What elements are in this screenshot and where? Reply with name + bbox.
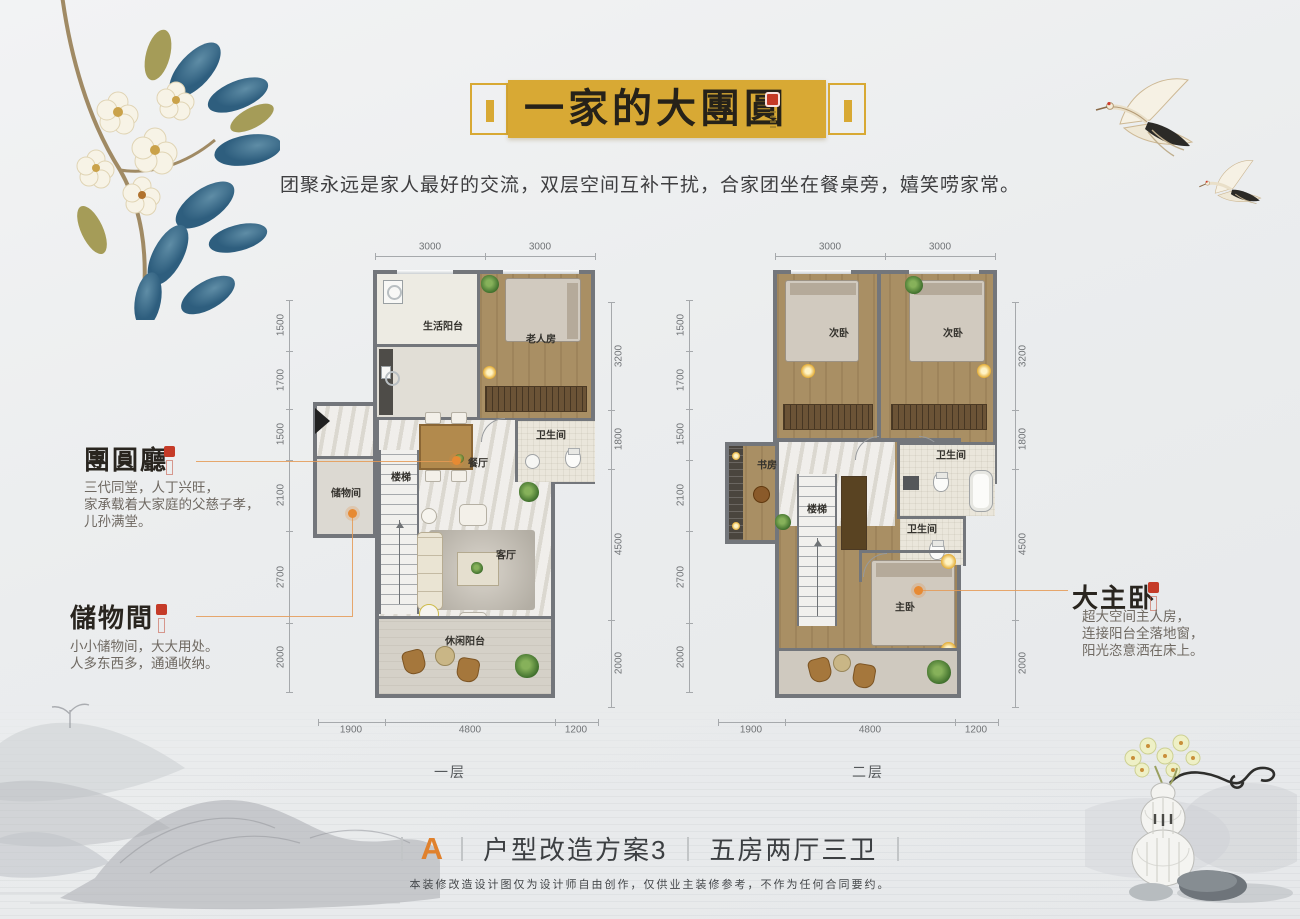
dim-label: 4500 bbox=[614, 533, 625, 555]
red-seal-icon bbox=[765, 92, 780, 107]
room-label: 主卧 bbox=[895, 599, 915, 614]
lamp-icon bbox=[801, 364, 815, 378]
wall bbox=[515, 418, 595, 421]
dim-label: 1800 bbox=[1018, 428, 1029, 450]
crane-icon bbox=[1090, 72, 1210, 164]
annotation-line: 三代同堂，人丁兴旺， bbox=[84, 479, 260, 496]
annotation-body-hall: 三代同堂，人丁兴旺， 家承载着大家庭的父慈子孝， 儿孙满堂。 bbox=[84, 479, 260, 530]
separator-bar bbox=[897, 837, 899, 861]
wall bbox=[963, 516, 966, 566]
room-label: 客厅 bbox=[496, 547, 516, 562]
wall bbox=[897, 442, 900, 516]
dim-label: 2700 bbox=[276, 566, 287, 588]
dim-label: 1800 bbox=[614, 428, 625, 450]
dim-label: 1900 bbox=[340, 725, 362, 736]
window bbox=[909, 270, 979, 274]
sink-icon bbox=[525, 454, 540, 469]
plant-icon bbox=[905, 276, 923, 294]
room-label: 次卧 bbox=[829, 325, 849, 340]
annotation-line: 超大空间主人房， bbox=[1082, 608, 1204, 625]
dim-label: 2700 bbox=[676, 566, 687, 588]
plant-icon bbox=[481, 275, 499, 293]
callout-dot bbox=[452, 456, 461, 465]
floor1-label: 一层 bbox=[434, 762, 466, 782]
annotation-title-hall: 團圓廳 bbox=[84, 440, 168, 477]
lamp-icon bbox=[732, 452, 740, 460]
wall bbox=[897, 442, 995, 445]
dim-label: 3200 bbox=[614, 345, 625, 367]
dimension-line bbox=[318, 722, 598, 723]
annotation-line: 儿孙满堂。 bbox=[84, 513, 260, 530]
leader-line bbox=[922, 590, 1068, 591]
dim-label: 1700 bbox=[676, 369, 687, 391]
dim-label: 4800 bbox=[459, 725, 481, 736]
wall bbox=[859, 550, 961, 553]
sofa-icon bbox=[417, 532, 443, 610]
room-label: 休闲阳台 bbox=[445, 633, 485, 648]
dim-label: 1700 bbox=[276, 369, 287, 391]
wall bbox=[515, 418, 518, 482]
leader-line bbox=[196, 616, 352, 617]
scheme-spec: 五房两厅三卫 bbox=[709, 830, 877, 867]
disclaimer-text: 本装修改造设计图仅为设计师自由创作，仅供业主装修参考，不作为任何合同要约。 bbox=[0, 876, 1300, 892]
desk-chair-icon bbox=[753, 486, 770, 503]
annotation-line: 连接阳台全落地窗， bbox=[1082, 625, 1204, 642]
chair-icon bbox=[451, 470, 467, 482]
floor2-label: 二层 bbox=[852, 762, 884, 782]
bathtub-icon bbox=[969, 470, 993, 512]
floor1-plan: 3000 3000 1500 1700 1500 2100 2700 2000 … bbox=[313, 270, 615, 712]
lamp-icon bbox=[977, 364, 991, 378]
patio-table-icon bbox=[435, 646, 455, 666]
room-label: 老人房 bbox=[526, 331, 556, 346]
room-label: 餐厅 bbox=[468, 455, 488, 470]
poster-page: 一家的大團圓 团聚永远是家人最好的交流，双层空间互补干扰，合家团坐在餐桌旁，嬉笑… bbox=[0, 0, 1300, 919]
dimension-line bbox=[718, 722, 998, 723]
bed-icon bbox=[909, 280, 985, 362]
room-label: 生活阳台 bbox=[423, 318, 463, 333]
dim-label: 1500 bbox=[276, 423, 287, 445]
dim-label: 3200 bbox=[1018, 345, 1029, 367]
plant-icon bbox=[515, 654, 539, 678]
annotation-title-storage: 儲物間 bbox=[70, 598, 154, 635]
room-label: 卫生间 bbox=[536, 427, 566, 442]
toilet-icon bbox=[933, 472, 949, 492]
room-label: 楼梯 bbox=[391, 469, 411, 484]
window bbox=[503, 270, 579, 274]
lamp-icon bbox=[941, 554, 956, 569]
red-seal-icon bbox=[164, 446, 175, 457]
room-label: 楼梯 bbox=[807, 501, 827, 516]
room-label: 次卧 bbox=[943, 325, 963, 340]
dim-label: 1200 bbox=[965, 725, 987, 736]
dim-label: 3000 bbox=[529, 242, 551, 253]
dimension-line bbox=[611, 302, 612, 707]
leader-line bbox=[196, 461, 454, 462]
dimension-line bbox=[289, 300, 290, 692]
window bbox=[397, 270, 453, 274]
separator-bar bbox=[401, 837, 403, 861]
plant-icon bbox=[775, 514, 791, 530]
vanity-icon bbox=[903, 476, 919, 490]
banner-slab: 一家的大團圓 bbox=[508, 80, 826, 138]
seal-inscription bbox=[770, 111, 776, 129]
room-label: 书房 bbox=[757, 457, 777, 472]
scheme-name: 户型改造方案3 bbox=[483, 830, 667, 867]
annotation-line: 家承载着大家庭的父慈子孝， bbox=[84, 496, 260, 513]
stairs-direction-arrow bbox=[399, 520, 400, 604]
lamp-icon bbox=[732, 522, 740, 530]
stairs-direction-arrow bbox=[817, 538, 818, 616]
banner-scroll-end-left bbox=[470, 83, 508, 135]
wardrobe-icon bbox=[783, 404, 873, 430]
armchair-icon bbox=[459, 504, 487, 526]
red-seal-icon bbox=[156, 604, 167, 615]
wall bbox=[877, 274, 881, 438]
dim-label: 4500 bbox=[1018, 533, 1029, 555]
page-title: 一家的大團圓 bbox=[524, 89, 788, 129]
dim-label: 2000 bbox=[614, 652, 625, 674]
toilet-icon bbox=[565, 448, 581, 468]
dim-label: 1500 bbox=[676, 423, 687, 445]
callout-dot bbox=[348, 509, 357, 518]
wardrobe-icon bbox=[841, 476, 867, 550]
dim-label: 2000 bbox=[1018, 652, 1029, 674]
separator-bar bbox=[461, 837, 463, 861]
window bbox=[791, 270, 851, 274]
subtitle: 团聚永远是家人最好的交流，双层空间互补干扰，合家团坐在餐桌旁，嬉笑唠家常。 bbox=[0, 170, 1300, 197]
dim-label: 2100 bbox=[276, 484, 287, 506]
dim-label: 2000 bbox=[276, 646, 287, 668]
annotation-body-storage: 小小储物间，大大用处。 人多东西多，通通收纳。 bbox=[70, 638, 219, 672]
side-table-icon bbox=[421, 508, 437, 524]
room-label: 卫生间 bbox=[907, 521, 937, 536]
dining-table-icon bbox=[419, 424, 473, 470]
dim-label: 1500 bbox=[676, 314, 687, 336]
plant-icon bbox=[927, 660, 951, 684]
scheme-letter: A bbox=[421, 831, 443, 867]
room-label: 卫生间 bbox=[936, 447, 966, 462]
dim-label: 3000 bbox=[419, 242, 441, 253]
washer-icon bbox=[383, 280, 403, 304]
chair-icon bbox=[425, 470, 441, 482]
chair-icon bbox=[451, 412, 467, 424]
plant-icon bbox=[519, 482, 539, 502]
dim-label: 1900 bbox=[740, 725, 762, 736]
blossom-branch-illustration bbox=[0, 0, 280, 320]
patio-table-icon bbox=[833, 654, 851, 672]
dim-label: 1500 bbox=[276, 314, 287, 336]
annotation-line: 阳光恣意洒在床上。 bbox=[1082, 642, 1204, 659]
annotation-line: 人多东西多，通通收纳。 bbox=[70, 655, 219, 672]
dim-label: 3000 bbox=[819, 242, 841, 253]
bed-icon bbox=[785, 280, 859, 362]
dim-label: 1200 bbox=[565, 725, 587, 736]
dim-label: 2000 bbox=[676, 646, 687, 668]
wall bbox=[859, 552, 862, 582]
banner-scroll-end-right bbox=[828, 83, 866, 135]
dim-label: 3000 bbox=[929, 242, 951, 253]
dim-label: 4800 bbox=[859, 725, 881, 736]
dim-label: 2100 bbox=[676, 484, 687, 506]
annotation-line: 小小储物间，大大用处。 bbox=[70, 638, 219, 655]
chair-icon bbox=[425, 412, 441, 424]
sink-icon bbox=[381, 366, 391, 379]
callout-dot bbox=[914, 586, 923, 595]
scheme-footer: A 户型改造方案3 五房两厅三卫 bbox=[0, 830, 1300, 867]
room-label: 储物间 bbox=[331, 485, 361, 500]
red-seal-icon bbox=[1148, 582, 1159, 593]
lamp-icon bbox=[483, 366, 496, 379]
leader-line bbox=[352, 517, 353, 617]
separator-bar bbox=[687, 837, 689, 861]
wardrobe-icon bbox=[485, 386, 587, 412]
dimension-line bbox=[689, 300, 690, 692]
annotation-body-master: 超大空间主人房， 连接阳台全落地窗， 阳光恣意洒在床上。 bbox=[1082, 608, 1204, 659]
wardrobe-icon bbox=[891, 404, 987, 430]
floor2-plan: 3000 3000 1500 1700 1500 2100 2700 2000 … bbox=[713, 270, 1015, 712]
plant-icon bbox=[471, 562, 483, 574]
entry-door-icon bbox=[315, 408, 330, 434]
dimension-line bbox=[1015, 302, 1016, 707]
